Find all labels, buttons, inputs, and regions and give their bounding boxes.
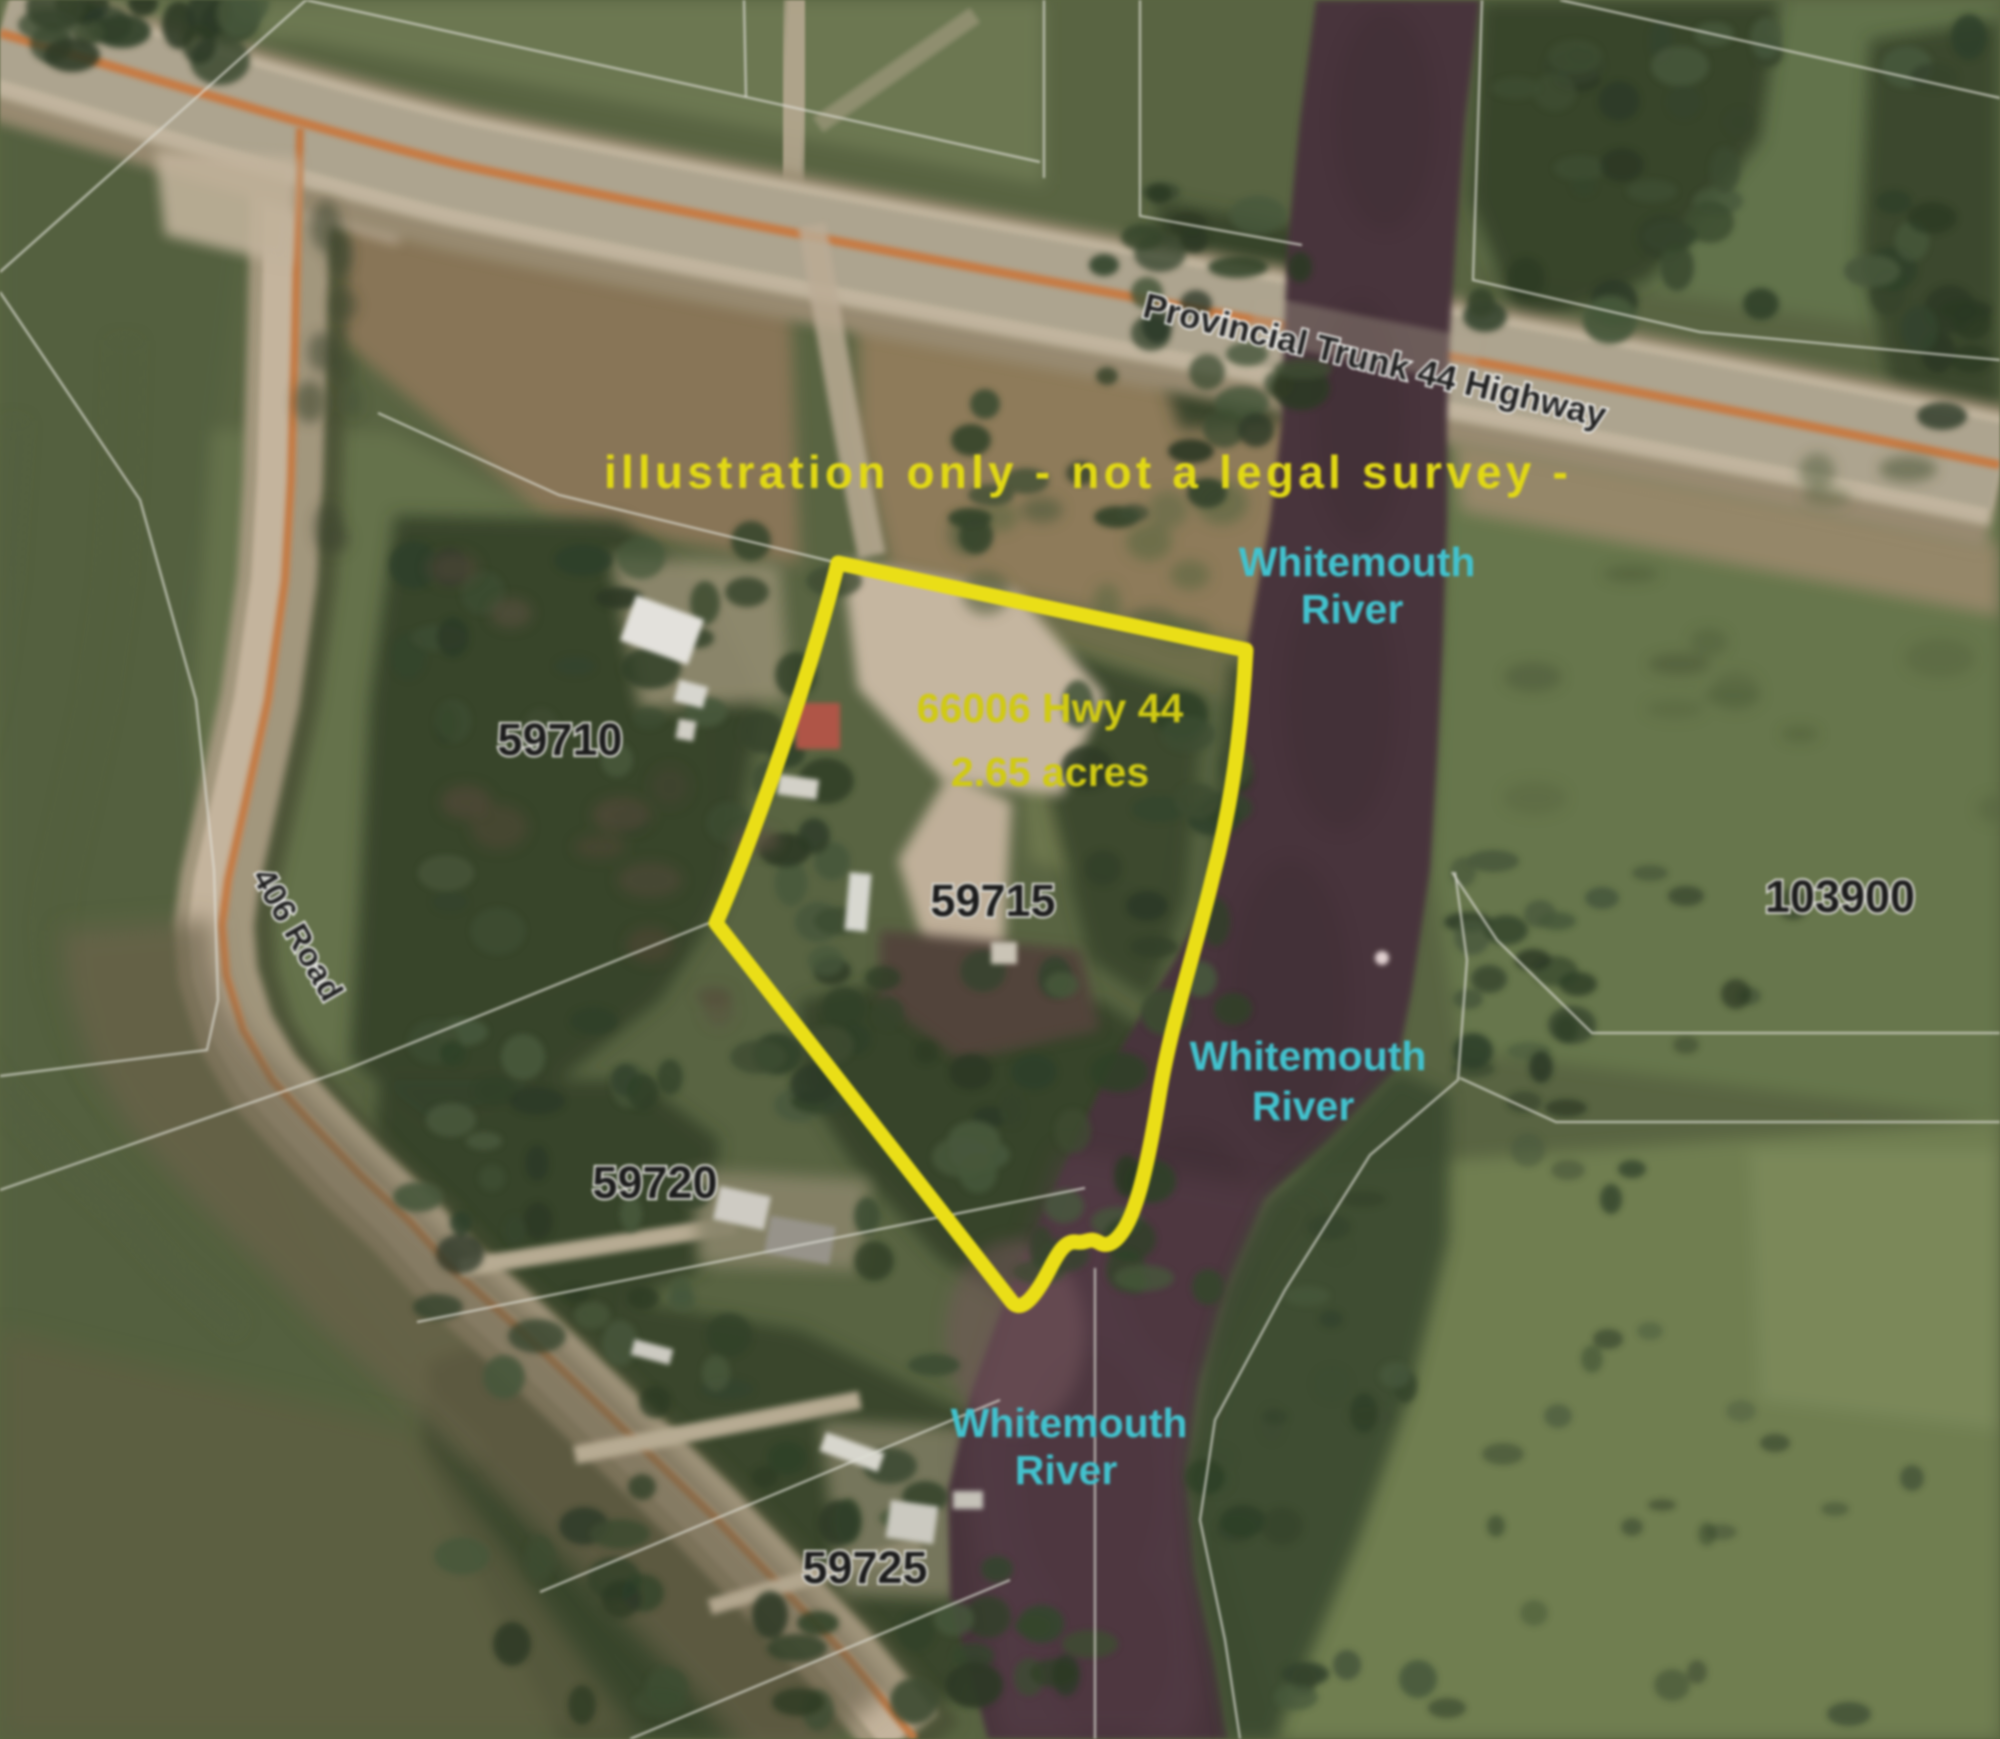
svg-text:103900: 103900	[1765, 871, 1915, 922]
svg-text:59725: 59725	[802, 1542, 927, 1593]
svg-text:59715: 59715	[930, 875, 1055, 926]
svg-text:River: River	[1015, 1447, 1118, 1493]
svg-text:River: River	[1252, 1083, 1355, 1129]
svg-text:Whitemouth: Whitemouth	[1190, 1033, 1427, 1079]
svg-text:Whitemouth: Whitemouth	[951, 1400, 1188, 1446]
svg-text:2.65 acres: 2.65 acres	[951, 749, 1149, 795]
svg-text:River: River	[1301, 586, 1404, 632]
svg-text:66006 Hwy 44: 66006 Hwy 44	[917, 685, 1184, 731]
svg-text:illustration only - not a lega: illustration only - not a legal survey -	[604, 446, 1572, 498]
svg-text:Whitemouth: Whitemouth	[1239, 539, 1476, 585]
svg-text:59710: 59710	[497, 714, 622, 765]
svg-text:59720: 59720	[592, 1157, 717, 1208]
